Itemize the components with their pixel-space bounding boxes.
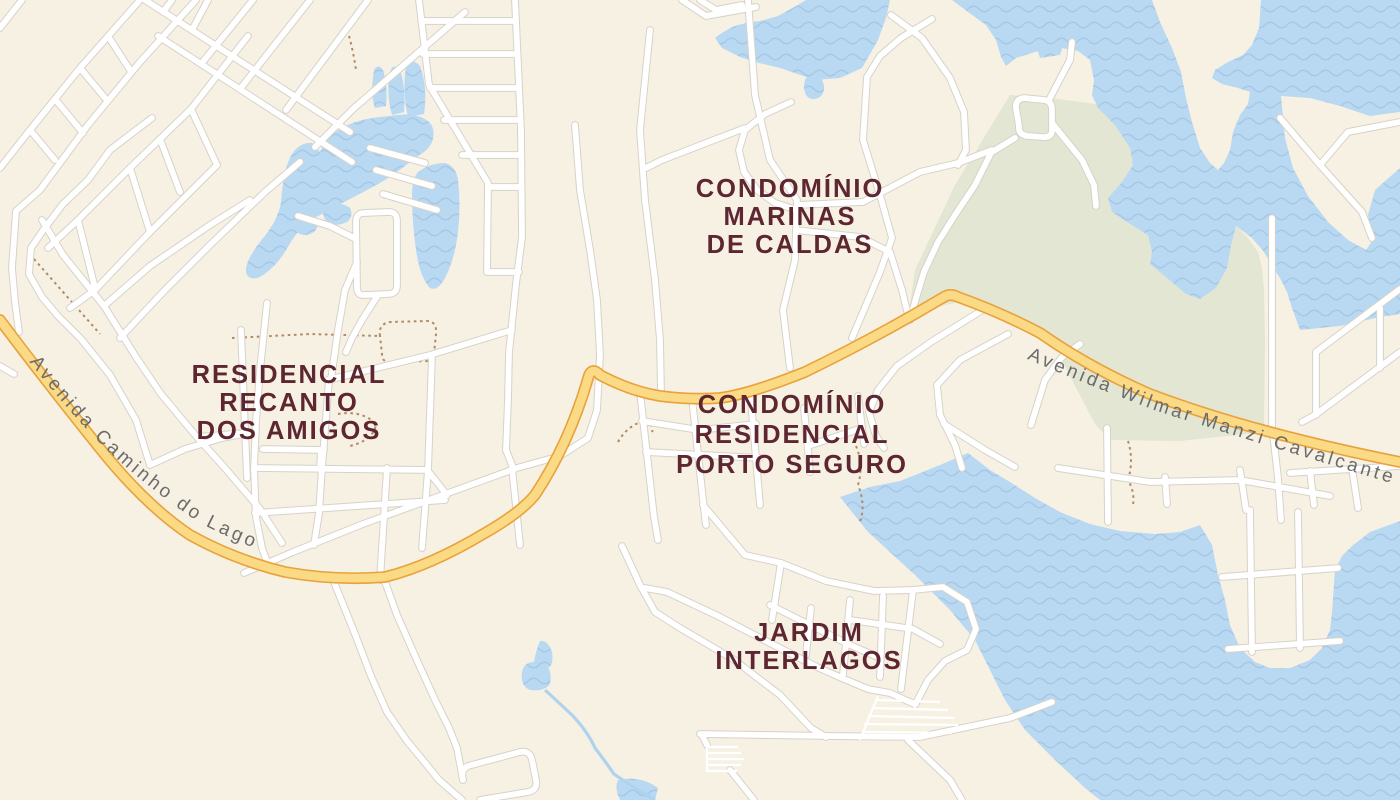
svg-text:CONDOMÍNIO: CONDOMÍNIO — [696, 174, 885, 203]
svg-text:PORTO SEGURO: PORTO SEGURO — [676, 451, 908, 479]
svg-text:CONDOMÍNIO: CONDOMÍNIO — [698, 390, 887, 419]
svg-text:DOS AMIGOS: DOS AMIGOS — [197, 417, 382, 445]
svg-text:MARINAS: MARINAS — [724, 203, 857, 231]
svg-text:RESIDENCIAL: RESIDENCIAL — [192, 361, 387, 389]
svg-text:RESIDENCIAL: RESIDENCIAL — [695, 421, 890, 449]
svg-text:JARDIM: JARDIM — [754, 619, 864, 647]
svg-text:DE CALDAS: DE CALDAS — [707, 231, 874, 259]
svg-text:RECANTO: RECANTO — [219, 389, 359, 417]
svg-text:INTERLAGOS: INTERLAGOS — [715, 647, 902, 675]
